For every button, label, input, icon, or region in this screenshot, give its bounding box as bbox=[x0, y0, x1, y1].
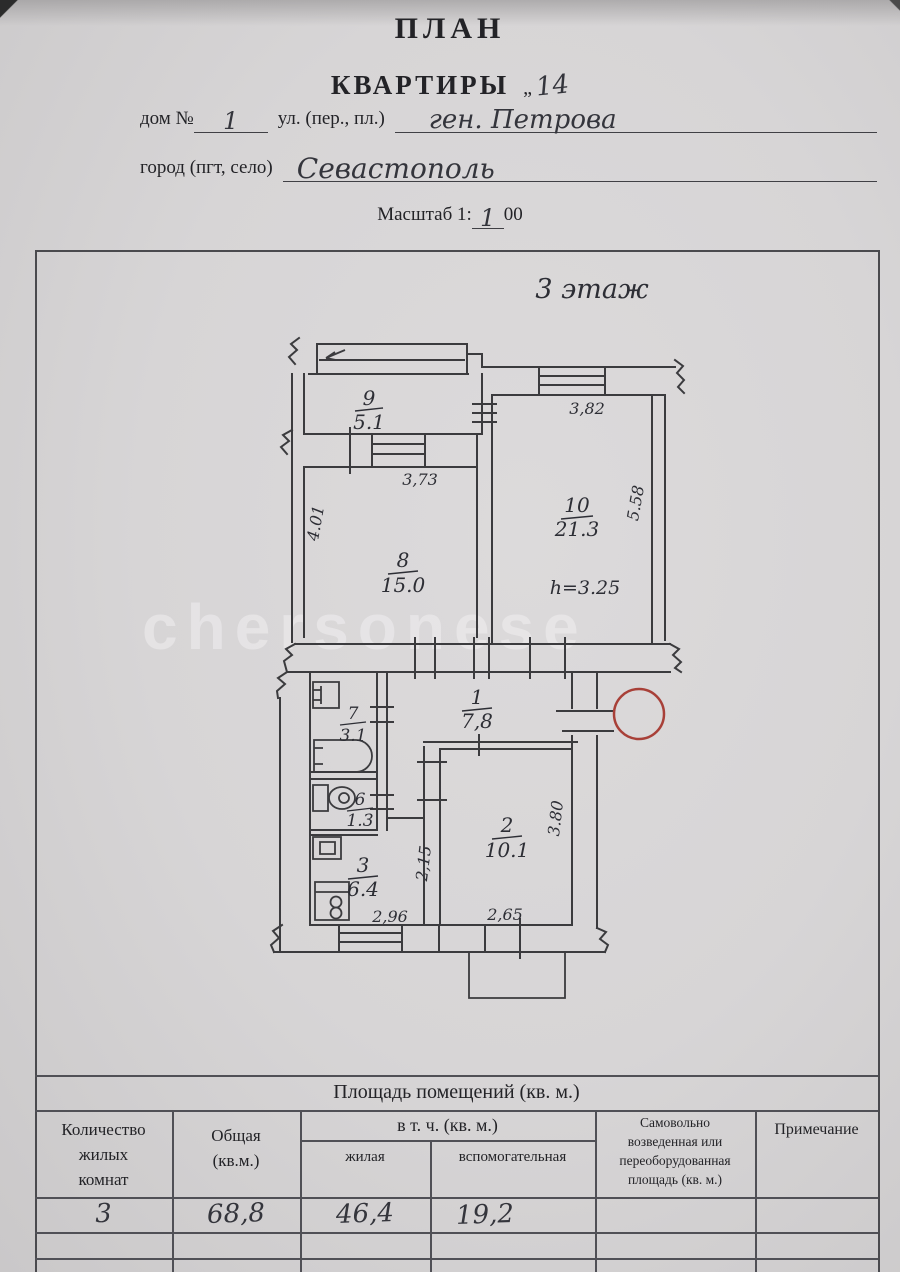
col-header-aux: вспомогательная bbox=[430, 1145, 595, 1170]
col-header-line: Количество bbox=[35, 1117, 172, 1142]
bottom-balcony bbox=[469, 952, 565, 998]
wall-break-mid-left bbox=[284, 644, 295, 672]
room-height-label: h=3.25 bbox=[550, 577, 620, 599]
col-header-line: жилых bbox=[35, 1142, 172, 1167]
value-total-area: 68,8 bbox=[171, 1197, 300, 1234]
scale-tail: 00 bbox=[504, 204, 523, 229]
dim-corridor: 2,15 bbox=[412, 844, 435, 883]
room-label-3: 3 6.4 bbox=[347, 853, 379, 901]
col-header-unauthorized: Самовольно возведенная или переоборудова… bbox=[595, 1113, 755, 1189]
room-area: 15.0 bbox=[381, 573, 426, 597]
toilet-bowl-center bbox=[339, 793, 349, 803]
scale-label: Масштаб 1: bbox=[377, 204, 472, 229]
scale-row: Масштаб 1: 1 00 bbox=[0, 204, 900, 229]
table-line bbox=[300, 1140, 595, 1142]
room-area: 1.3 bbox=[346, 811, 373, 831]
room-label-6: 6 1.3 bbox=[346, 790, 373, 831]
floor-label: 3 этаж bbox=[535, 274, 649, 305]
areas-table: Площадь помещений (кв. м.) Количество жи… bbox=[35, 1075, 878, 1272]
toilet-bowl bbox=[329, 787, 355, 809]
city-row: город (пгт, село) Севастополь bbox=[140, 156, 877, 182]
floor-plan-svg: 3 этаж bbox=[37, 252, 878, 1075]
value-living-area: 46,4 bbox=[299, 1197, 430, 1235]
col-header-living: жилая bbox=[300, 1145, 430, 1170]
table-title: Площадь помещений (кв. м.) bbox=[35, 1080, 878, 1105]
room-label-8: 8 15.0 bbox=[381, 548, 426, 597]
room-number: 2 bbox=[500, 813, 514, 837]
room-label-10: 10 21.3 bbox=[554, 493, 600, 541]
room-area: 3.1 bbox=[339, 726, 366, 746]
wall-break-top-left bbox=[289, 338, 299, 364]
street-label: ул. (пер., пл.) bbox=[278, 108, 385, 133]
room-number: 9 bbox=[363, 386, 376, 410]
room-area: 10.1 bbox=[485, 838, 530, 862]
apartment-number: 14 bbox=[535, 69, 571, 102]
room-number: 1 bbox=[471, 685, 484, 709]
scanned-floor-plan-page: ПЛАН КВАРТИРЫ „ 14 дом № 1 ул. (пер., пл… bbox=[0, 0, 900, 1272]
dim-room8-top: 3,73 bbox=[402, 470, 438, 489]
apartment-number-mark: „ bbox=[523, 77, 532, 99]
room-label-7: 7 3.1 bbox=[339, 704, 366, 746]
room-area: 21.3 bbox=[554, 517, 600, 541]
wall-break-mid-right bbox=[670, 644, 681, 672]
dim-bottom-right: 2,65 bbox=[486, 905, 523, 924]
room-number: 7 bbox=[348, 704, 359, 724]
col-header-line: (кв.м.) bbox=[172, 1148, 300, 1173]
room-label-9: 9 5.1 bbox=[353, 386, 385, 434]
entrance-mark-circle bbox=[614, 689, 664, 739]
plan-walls bbox=[271, 338, 684, 998]
house-label: дом № bbox=[140, 108, 194, 133]
dim-bottom-left: 2,96 bbox=[371, 907, 408, 926]
room-number: 6 bbox=[355, 790, 366, 810]
table-line bbox=[35, 1075, 878, 1077]
col-header-note: Примечание bbox=[755, 1117, 878, 1142]
room-label-1: 1 7,8 bbox=[461, 685, 493, 733]
wall-break-top-right bbox=[675, 360, 684, 393]
dim-room8-left: 4.01 bbox=[303, 504, 328, 543]
stove-burner-2 bbox=[331, 908, 342, 919]
house-street-row: дом № 1 ул. (пер., пл.) ген. Петрова bbox=[140, 108, 877, 133]
col-header-line: возведенная или bbox=[595, 1132, 755, 1151]
city-label: город (пгт, село) bbox=[140, 157, 273, 182]
city-field: Севастополь bbox=[283, 156, 877, 182]
col-header-incl: в т. ч. (кв. м.) bbox=[300, 1113, 595, 1138]
wall-break-bottom-right bbox=[597, 928, 608, 952]
toilet-icon bbox=[313, 785, 328, 811]
bath-sink-icon bbox=[313, 682, 339, 708]
col-header-total: Общая (кв.м.) bbox=[172, 1123, 300, 1173]
dim-top: 3,82 bbox=[569, 399, 605, 418]
subtitle-row: КВАРТИРЫ „ 14 bbox=[30, 70, 870, 101]
scale-field: 1 bbox=[472, 208, 504, 229]
col-header-line: переоборудованная bbox=[595, 1151, 755, 1170]
table-line bbox=[35, 1258, 878, 1260]
room-label-2: 2 10.1 bbox=[485, 813, 530, 862]
stove-icon bbox=[315, 882, 349, 920]
room-area: 6.4 bbox=[347, 877, 379, 901]
col-header-line: Самовольно bbox=[595, 1113, 755, 1132]
dim-room2-right: 3.80 bbox=[544, 799, 567, 837]
stove-burner-1 bbox=[331, 897, 342, 908]
street-field: ген. Петрова bbox=[395, 108, 877, 133]
col-header-line: площадь (кв. м.) bbox=[595, 1170, 755, 1189]
room-number: 8 bbox=[397, 548, 410, 572]
room-area: 7,8 bbox=[461, 709, 493, 733]
value-rooms-count: 3 bbox=[34, 1197, 172, 1235]
house-number-field: 1 bbox=[194, 110, 268, 133]
page-title: ПЛАН bbox=[30, 12, 870, 46]
value-aux-area: 19,2 bbox=[429, 1196, 595, 1235]
wall-break-left-mid bbox=[281, 430, 292, 454]
direction-arrow-icon bbox=[326, 350, 345, 360]
table-line bbox=[35, 1110, 878, 1112]
kitchen-sink-icon bbox=[313, 837, 341, 859]
col-header-line: комнат bbox=[35, 1167, 172, 1192]
room-number: 10 bbox=[564, 493, 590, 517]
col-header-rooms: Количество жилых комнат bbox=[35, 1117, 172, 1192]
room-area: 5.1 bbox=[353, 410, 385, 434]
subtitle: КВАРТИРЫ bbox=[331, 70, 509, 100]
col-header-line: Общая bbox=[172, 1123, 300, 1148]
dim-right: 5.58 bbox=[623, 484, 648, 522]
room-number: 3 bbox=[357, 853, 370, 877]
